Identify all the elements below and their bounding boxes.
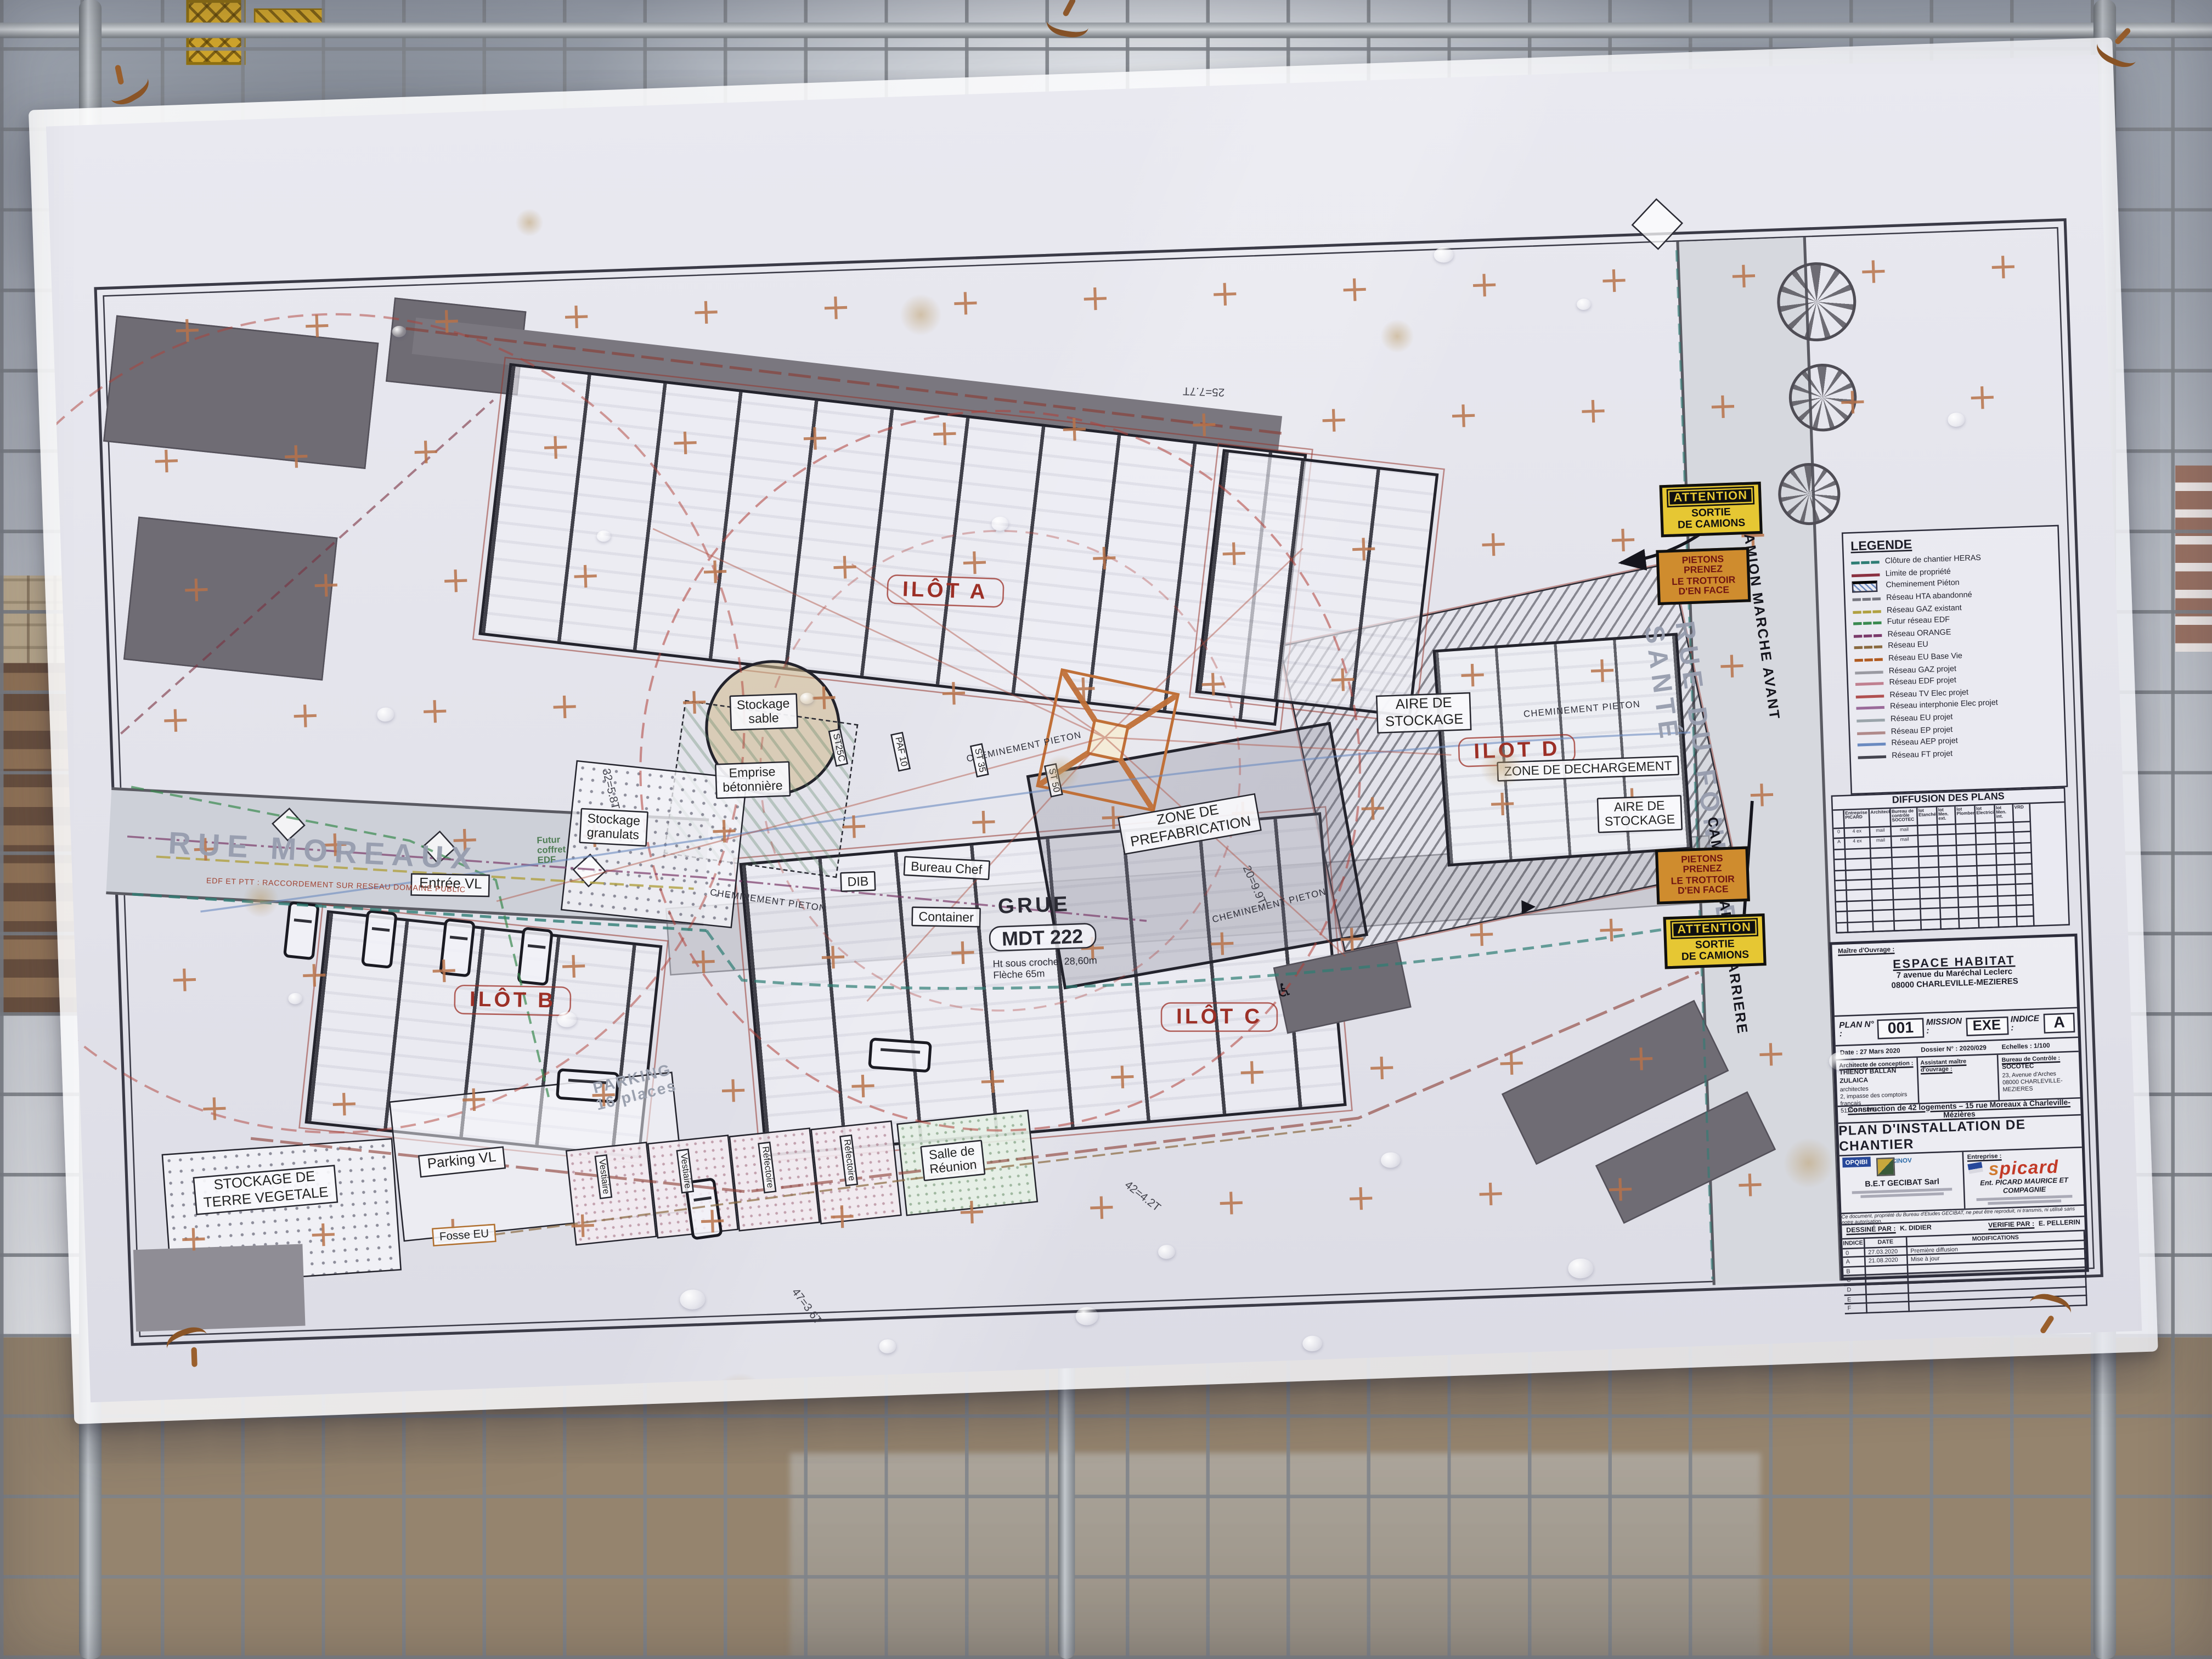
diffusion-cell — [1978, 865, 1998, 876]
mods-cell: C — [1844, 1276, 1867, 1286]
diffusion-cell — [2015, 833, 2032, 844]
diffusion-cell — [1873, 911, 1894, 922]
sign-attention-camions-bottom: ATTENTIONSORTIEDE CAMIONS — [1663, 913, 1766, 969]
charge-25t: 25=7.7T — [1183, 384, 1225, 398]
water-droplet — [377, 707, 394, 721]
cheminement-pieton-3: CHEMINEMENT PIETON — [1523, 700, 1641, 721]
entreprise-box: Entreprise : spicard Ent. PICARD MAURICE… — [1964, 1148, 2084, 1208]
diffusion-cell — [1979, 907, 1999, 918]
diffusion-cell — [1956, 824, 1977, 835]
futur-coffret-edf: Futur coffret EDF — [537, 837, 566, 866]
diffusion-cell — [2015, 843, 2033, 854]
diffusion-cell — [1837, 912, 1848, 923]
diffusion-header-cell: Bureau de contrôle SOCOTEC — [1891, 808, 1918, 827]
emprise-betonniere-label: Emprise bétonnière — [715, 761, 790, 798]
parking-vl-label: Parking VL — [418, 1146, 506, 1177]
diffusion-cell — [1977, 855, 1997, 866]
stockage-terre-vegetale-label: STOCKAGE DE TERRE VEGETALE — [193, 1165, 338, 1215]
diffusion-cell — [1977, 844, 1997, 855]
amo-box: Assistant maître d'ouvrage : — [1917, 1055, 2000, 1103]
bureau-chef-label: Bureau Chef — [904, 856, 990, 881]
diffusion-cell — [2016, 874, 2034, 885]
cheminement-pieton-4: CHEMINEMENT PIETON — [1211, 888, 1328, 926]
street-rue-moreaux: RUE MOREAUX — [167, 825, 479, 877]
diffusion-cell — [2016, 885, 2034, 896]
diffusion-cell — [1872, 869, 1893, 880]
diffusion-cell — [1938, 825, 1956, 836]
diffusion-cell — [1871, 859, 1893, 870]
diffusion-cell — [1837, 923, 1848, 934]
diffusion-cell — [1939, 866, 1958, 877]
diffusion-cell — [1996, 833, 2015, 844]
diffusion-cell — [1835, 871, 1847, 882]
dib-label: DIB — [840, 871, 876, 893]
bet-box: OPQIBI CINOV B.E.T GECIBAT Sarl — [1839, 1152, 1966, 1213]
picard-logo: spicard — [1967, 1156, 2080, 1179]
diffusion-cell: A — [1834, 839, 1846, 850]
diffusion-cell — [1872, 879, 1893, 890]
diffusion-cell — [2015, 854, 2033, 865]
mods-cell: F — [1844, 1304, 1867, 1314]
stockage-granulats-label: Stockage granulats — [579, 808, 647, 847]
mods-cell: D — [1844, 1285, 1867, 1295]
site-plan-sheet: RUE MOREAUXRUE DU FOND DE SANTÉPARKING 1… — [46, 55, 2142, 1402]
diffusion-cell — [1872, 890, 1894, 901]
diffusion-cell — [1871, 848, 1892, 859]
diffusion-cell — [1921, 909, 1942, 920]
dossier-value: Dossier N° : 2020/029 — [1916, 1043, 1997, 1053]
legend-title: LEGENDE — [1850, 532, 2051, 553]
grue-specs: Ht sous crochet 28,60m Flèche 65m — [992, 956, 1097, 983]
diffusion-cell — [1847, 870, 1872, 881]
flag-marker-icon: ▶ — [1521, 896, 1536, 917]
diffusion-cell — [1893, 868, 1920, 879]
drawn-value: K. DIDIER — [1900, 1225, 1932, 1233]
entreprise-name: Ent. PICARD MAURICE ET COMPAGNIE — [1968, 1176, 2080, 1197]
paf10-label: PAF 10 — [890, 732, 911, 772]
diffusion-cell: 0 — [1833, 829, 1845, 840]
architect-name: THIENOT BALLAN ZULAICA — [1839, 1066, 1914, 1085]
cheminement-pieton-2: CHEMINEMENT PIETON — [709, 888, 827, 915]
water-droplet — [1158, 1245, 1176, 1259]
water-droplet — [879, 1339, 896, 1353]
diffusion-cell — [2017, 906, 2035, 917]
diffusion-cell — [1920, 867, 1940, 878]
diffusion-cell — [1918, 836, 1939, 847]
diffusion-cell — [1893, 878, 1920, 890]
photo-of-site-plan: RUE MOREAUXRUE DU FOND DE SANTÉPARKING 1… — [0, 0, 2212, 1659]
diffusion-cell — [1959, 887, 1979, 898]
mods-cell — [1867, 1302, 1910, 1313]
gecibat-logo — [1876, 1158, 1895, 1177]
ilot-a-label: ILÔT A — [887, 574, 1004, 608]
diffusion-cell — [1921, 919, 1942, 930]
grue-model: MDT 222 — [989, 923, 1096, 952]
zone-prefabrication-label: ZONE DE PREFABRICATION — [1118, 793, 1261, 855]
diffusion-cell — [1836, 881, 1847, 892]
drawn-label: DESSINÉ PAR : — [1846, 1227, 1896, 1235]
amo-title: Assistant maître d'ouvrage : — [1920, 1057, 1995, 1074]
diffusion-header-cell — [1833, 810, 1845, 829]
diffusion-cell — [1979, 917, 2000, 928]
diffusion-cell — [1848, 901, 1874, 912]
diffusion-cell — [1848, 922, 1874, 933]
title-block: Maître d'Ouvrage : ESPACE HABITAT 7 aven… — [1829, 934, 2089, 1281]
diffusion-cell — [1957, 855, 1978, 866]
diffusion-header-cell: lot Men. ext. — [1937, 806, 1956, 826]
indice-value: A — [2044, 1013, 2075, 1034]
diffusion-cell — [1921, 899, 1941, 910]
diffusion-cell — [1996, 844, 2015, 855]
mods-header-cell: INDICE — [1842, 1239, 1865, 1249]
diffusion-cell: mail — [1892, 826, 1918, 838]
echelle-value: Echelles : 1/100 — [1997, 1041, 2079, 1051]
plan-no-value: 001 — [1877, 1018, 1923, 1040]
diffusion-cell — [1957, 845, 1977, 856]
diffusion-cell — [1978, 876, 1998, 887]
verified-label: VERIFIE PAR : — [1988, 1222, 2034, 1231]
diffusion-cell — [1959, 907, 1979, 918]
verified-value: E. PELLERIN — [2039, 1220, 2081, 1229]
diffusion-cell — [1920, 888, 1940, 899]
diffusion-cell — [1997, 865, 2016, 876]
legend-box: LEGENDE Clôture de chantier HERASLimite … — [1842, 525, 2068, 795]
grue-title: GRUE — [997, 893, 1070, 919]
sign-pietons-top: PIETONSPRENEZLE TROTTOIRD'EN FACE — [1656, 547, 1751, 606]
charge-42t: 42=4.2T — [1122, 1178, 1163, 1214]
diffusion-cell — [1940, 877, 1959, 888]
diffusion-cell — [1958, 866, 1978, 877]
diffusion-cell — [1894, 910, 1921, 921]
diffusion-cell — [1960, 918, 1980, 929]
diffusion-cell — [1997, 875, 2016, 886]
diffusion-cell — [1940, 898, 1959, 909]
diffusion-cell — [1920, 857, 1940, 868]
diffusion-header-cell: lot Plomberie — [1956, 806, 1976, 825]
water-droplet — [1948, 413, 1965, 427]
diffusion-cell — [2017, 916, 2035, 927]
ilot-c-label: ILÔT C — [1161, 1002, 1278, 1032]
handicap-icon: ♿ — [1276, 981, 1293, 1002]
diffusion-cell — [1846, 859, 1872, 871]
diffusion-cell — [1893, 857, 1920, 869]
diffusion-cell — [1957, 834, 1977, 845]
diffusion-cell — [2016, 864, 2033, 875]
plan-labels-layer: RUE MOREAUXRUE DU FOND DE SANTÉPARKING 1… — [46, 55, 2142, 1402]
diffusion-cell — [1894, 899, 1921, 911]
mission-value: EXE — [1965, 1015, 2008, 1035]
diffusion-header-cell: lot Men. int. — [1995, 804, 2015, 823]
diffusion-cell — [1874, 921, 1895, 932]
parking-16-places: PARKING 16 places — [590, 1062, 679, 1115]
diffusion-cell — [1979, 896, 1999, 907]
diffusion-cell — [1959, 897, 1979, 908]
diffusion-cell — [1998, 885, 2017, 896]
plan-no-label: PLAN N° : — [1839, 1021, 1875, 1039]
fence-top-rail — [0, 22, 2212, 38]
sign-pietons-bottom: PIETONSPRENEZLE TROTTOIRD'EN FACE — [1655, 847, 1750, 905]
charge-47t: 47=3.6T — [789, 1286, 825, 1327]
aire-stockage-label-2: AIRE DE STOCKAGE — [1597, 795, 1683, 833]
salle-de-reunion-label: Salle de Réunion — [920, 1140, 985, 1181]
diffusion-cell — [1997, 854, 2016, 865]
vestiaire-label-2: Vestiaire — [675, 1149, 694, 1194]
mods-cell: E — [1844, 1295, 1867, 1305]
diffusion-cell: 4 ex — [1846, 838, 1871, 850]
diffusion-cell — [1919, 847, 1939, 857]
stockage-sable-label: Stockage sable — [729, 693, 797, 730]
diffusion-cell: mail — [1871, 838, 1892, 849]
diffusion-cell — [1958, 876, 1978, 887]
diffusion-cell — [1848, 911, 1874, 923]
diffusion-header-cell: VRD — [2013, 804, 2031, 822]
diffusion-cell — [1895, 920, 1922, 932]
diffusion-header-cell: lot Electricité — [1976, 805, 1996, 825]
diffusion-cell — [1977, 834, 1997, 845]
diffusion-cell — [1941, 918, 1960, 929]
diffusion-cell — [1918, 826, 1939, 837]
diffusion-cell — [1941, 908, 1960, 919]
diffusion-cell — [1939, 856, 1957, 867]
diffusion-cell — [1996, 823, 2015, 834]
diffusion-cell — [1939, 846, 1957, 857]
diffusion-cell — [1873, 900, 1894, 911]
mods-cell: 0 — [1843, 1248, 1866, 1258]
refectoire-label-2: Réfectoire — [839, 1135, 858, 1186]
controle-box: Bureau de Contrôle : SOCOTEC 23, Avenue … — [1999, 1052, 2080, 1100]
diffusion-cell — [1835, 860, 1846, 871]
refectoire-label-1: Réfectoire — [757, 1142, 776, 1193]
diffusion-cell: 4 ex — [1845, 828, 1871, 839]
diffusion-cell — [1835, 850, 1846, 861]
diffusion-header-cell: Entreprise PICARD — [1844, 810, 1870, 829]
diffusion-cell — [1847, 890, 1873, 902]
diffusion-cell — [1976, 823, 1996, 834]
st25c-label: ST25C — [827, 729, 848, 768]
water-droplet — [991, 516, 1009, 531]
diffusion-cell: mail — [1870, 827, 1892, 838]
diffusion-cell — [1836, 891, 1847, 902]
diffusion-header-cell: lot Etanchéité — [1917, 807, 1938, 826]
diffusion-cell — [1847, 880, 1872, 891]
diffusion-cell — [1999, 906, 2017, 917]
client-box: Maître d'Ouvrage : ESPACE HABITAT 7 aven… — [1832, 936, 2077, 1017]
mods-cell: B — [1843, 1267, 1866, 1277]
vestiaire-label-1: Vestiaire — [594, 1154, 612, 1199]
diffusion-cell — [1940, 887, 1959, 898]
diffusion-cell — [1892, 847, 1919, 859]
diffusion-cell — [2017, 895, 2034, 906]
charge-32t: 32=5.8T — [599, 768, 622, 811]
ilot-b-label: ILÔT B — [454, 985, 572, 1017]
mission-label: MISSION : — [1926, 1018, 1963, 1036]
mods-cell: A — [1843, 1257, 1866, 1267]
diffusion-cell — [1846, 849, 1871, 860]
sign-attention-camions-top: ATTENTIONSORTIEDE CAMIONS — [1660, 482, 1763, 538]
diffusion-cell — [1920, 878, 1940, 889]
fosse-eu-label: Fosse EU — [432, 1224, 496, 1247]
diffusion-cell — [1894, 889, 1921, 900]
diffusion-table: DIFFUSION DES PLANS Entreprise PICARDArc… — [1831, 787, 2070, 934]
diffusion-cell — [1938, 836, 1957, 847]
diffusion-cell — [2014, 822, 2032, 833]
aire-stockage-label-1: AIRE DE STOCKAGE — [1376, 692, 1472, 733]
charge-20t: 20=9.9T — [1240, 864, 1269, 907]
indice-label: INDICE : — [2011, 1015, 2041, 1034]
diffusion-header-cell: Architecte — [1870, 809, 1892, 828]
diffusion-cell — [1999, 917, 2018, 928]
diffusion-cell — [1978, 886, 1999, 897]
controle-address: 23, Avenue d'Arches 08000 CHARLEVILLE-ME… — [2002, 1069, 2077, 1094]
container-label: Container — [911, 906, 981, 928]
diffusion-cell — [1998, 896, 2017, 907]
opqibi-logo: OPQIBI — [1842, 1157, 1870, 1168]
diffusion-cell — [1836, 902, 1848, 913]
diffusion-cell: mail — [1892, 837, 1918, 848]
